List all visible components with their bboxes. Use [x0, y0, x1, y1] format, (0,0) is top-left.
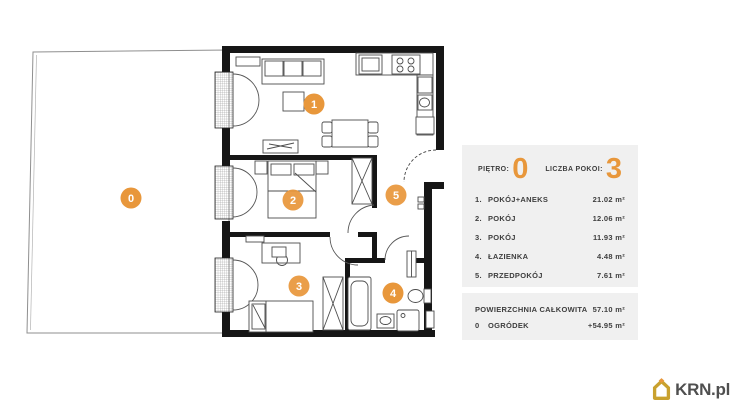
meter-box-icon	[418, 197, 424, 202]
room-list: 1. POKÓJ+ANEKS 21.02 m² 2. POKÓJ 12.06 m…	[475, 190, 625, 285]
listing-floorplan-image: 0 1 2 3 4 5	[0, 0, 740, 410]
radiator-icon	[407, 251, 416, 277]
svg-text:0: 0	[128, 193, 134, 205]
room-list-item: 1. POKÓJ+ANEKS 21.02 m²	[475, 190, 625, 209]
bathtub-icon	[348, 277, 371, 330]
krn-house-icon	[652, 378, 671, 401]
total-area-row: POWIERZCHNIA CAŁKOWITA 57.10 m²	[475, 301, 625, 317]
marker-room-2: 2	[283, 190, 304, 211]
apartment-info-panel: PIĘTRO: 0 LICZBA POKOI: 3 1. POKÓJ+ANEKS…	[462, 145, 638, 340]
room-list-item: 3. POKÓJ 11.93 m²	[475, 228, 625, 247]
rooms-count-value: 3	[606, 156, 622, 182]
svg-text:2: 2	[290, 195, 296, 207]
washing-machine-icon	[397, 310, 419, 331]
svg-text:4: 4	[390, 288, 397, 300]
dresser-icon	[263, 140, 298, 153]
marker-room-1: 1	[304, 94, 325, 115]
fridge-icon	[416, 117, 434, 134]
dining-table-icon	[322, 120, 378, 147]
room-list-item: 5. PRZEDPOKÓJ 7.61 m²	[475, 266, 625, 285]
garden-area-row: 0 OGRÓDEK +54.95 m²	[475, 317, 625, 333]
room-list-item: 2. POKÓJ 12.06 m²	[475, 209, 625, 228]
svg-text:1: 1	[311, 99, 317, 111]
stats-header: PIĘTRO: 0 LICZBA POKOI: 3	[475, 156, 625, 182]
totals-box: POWIERZCHNIA CAŁKOWITA 57.10 m² 0 OGRÓDE…	[462, 293, 638, 340]
room-list-item: 4. ŁAZIENKA 4.48 m²	[475, 247, 625, 266]
wardrobe-icon	[352, 158, 372, 204]
rooms-count-label: LICZBA POKOI:	[545, 166, 602, 173]
toilet-icon	[408, 289, 431, 303]
floor-stat: PIĘTRO: 0	[478, 156, 528, 182]
wardrobe-icon	[323, 277, 343, 330]
krn-logo-text: KRN.pl	[675, 380, 730, 400]
coffee-table-icon	[283, 92, 304, 111]
marker-room-5: 5	[386, 185, 407, 206]
stove-icon	[392, 55, 420, 74]
marker-garden: 0	[121, 188, 142, 209]
room-2-furniture	[255, 140, 372, 218]
desk-icon	[262, 243, 300, 266]
room-1-furniture	[236, 53, 434, 147]
svg-text:5: 5	[393, 190, 399, 202]
floor-value: 0	[512, 156, 528, 182]
nightstand-icon	[316, 161, 328, 174]
floor-plan: 0 1 2 3 4 5	[0, 0, 460, 410]
marker-room-3: 3	[289, 276, 310, 297]
entrance-door-arc	[404, 150, 436, 182]
window-icons	[215, 72, 233, 312]
marker-room-4: 4	[383, 283, 404, 304]
nightstand-icon	[255, 161, 267, 174]
cabinet-icon	[426, 311, 434, 328]
meter-box-icon	[418, 204, 424, 209]
single-bed-icon	[249, 301, 313, 332]
rooms-summary-box: PIĘTRO: 0 LICZBA POKOI: 3 1. POKÓJ+ANEKS…	[462, 145, 638, 287]
floor-label: PIĘTRO:	[478, 166, 509, 173]
shelf-icon	[236, 57, 260, 66]
room-4-furniture	[348, 197, 434, 331]
rooms-count-stat: LICZBA POKOI: 3	[545, 156, 622, 182]
sofa-icon	[262, 59, 324, 84]
bathroom-sink-icon	[377, 314, 394, 328]
krn-watermark: KRN.pl	[652, 378, 730, 401]
svg-text:3: 3	[296, 281, 302, 293]
shelf-icon	[246, 236, 264, 242]
